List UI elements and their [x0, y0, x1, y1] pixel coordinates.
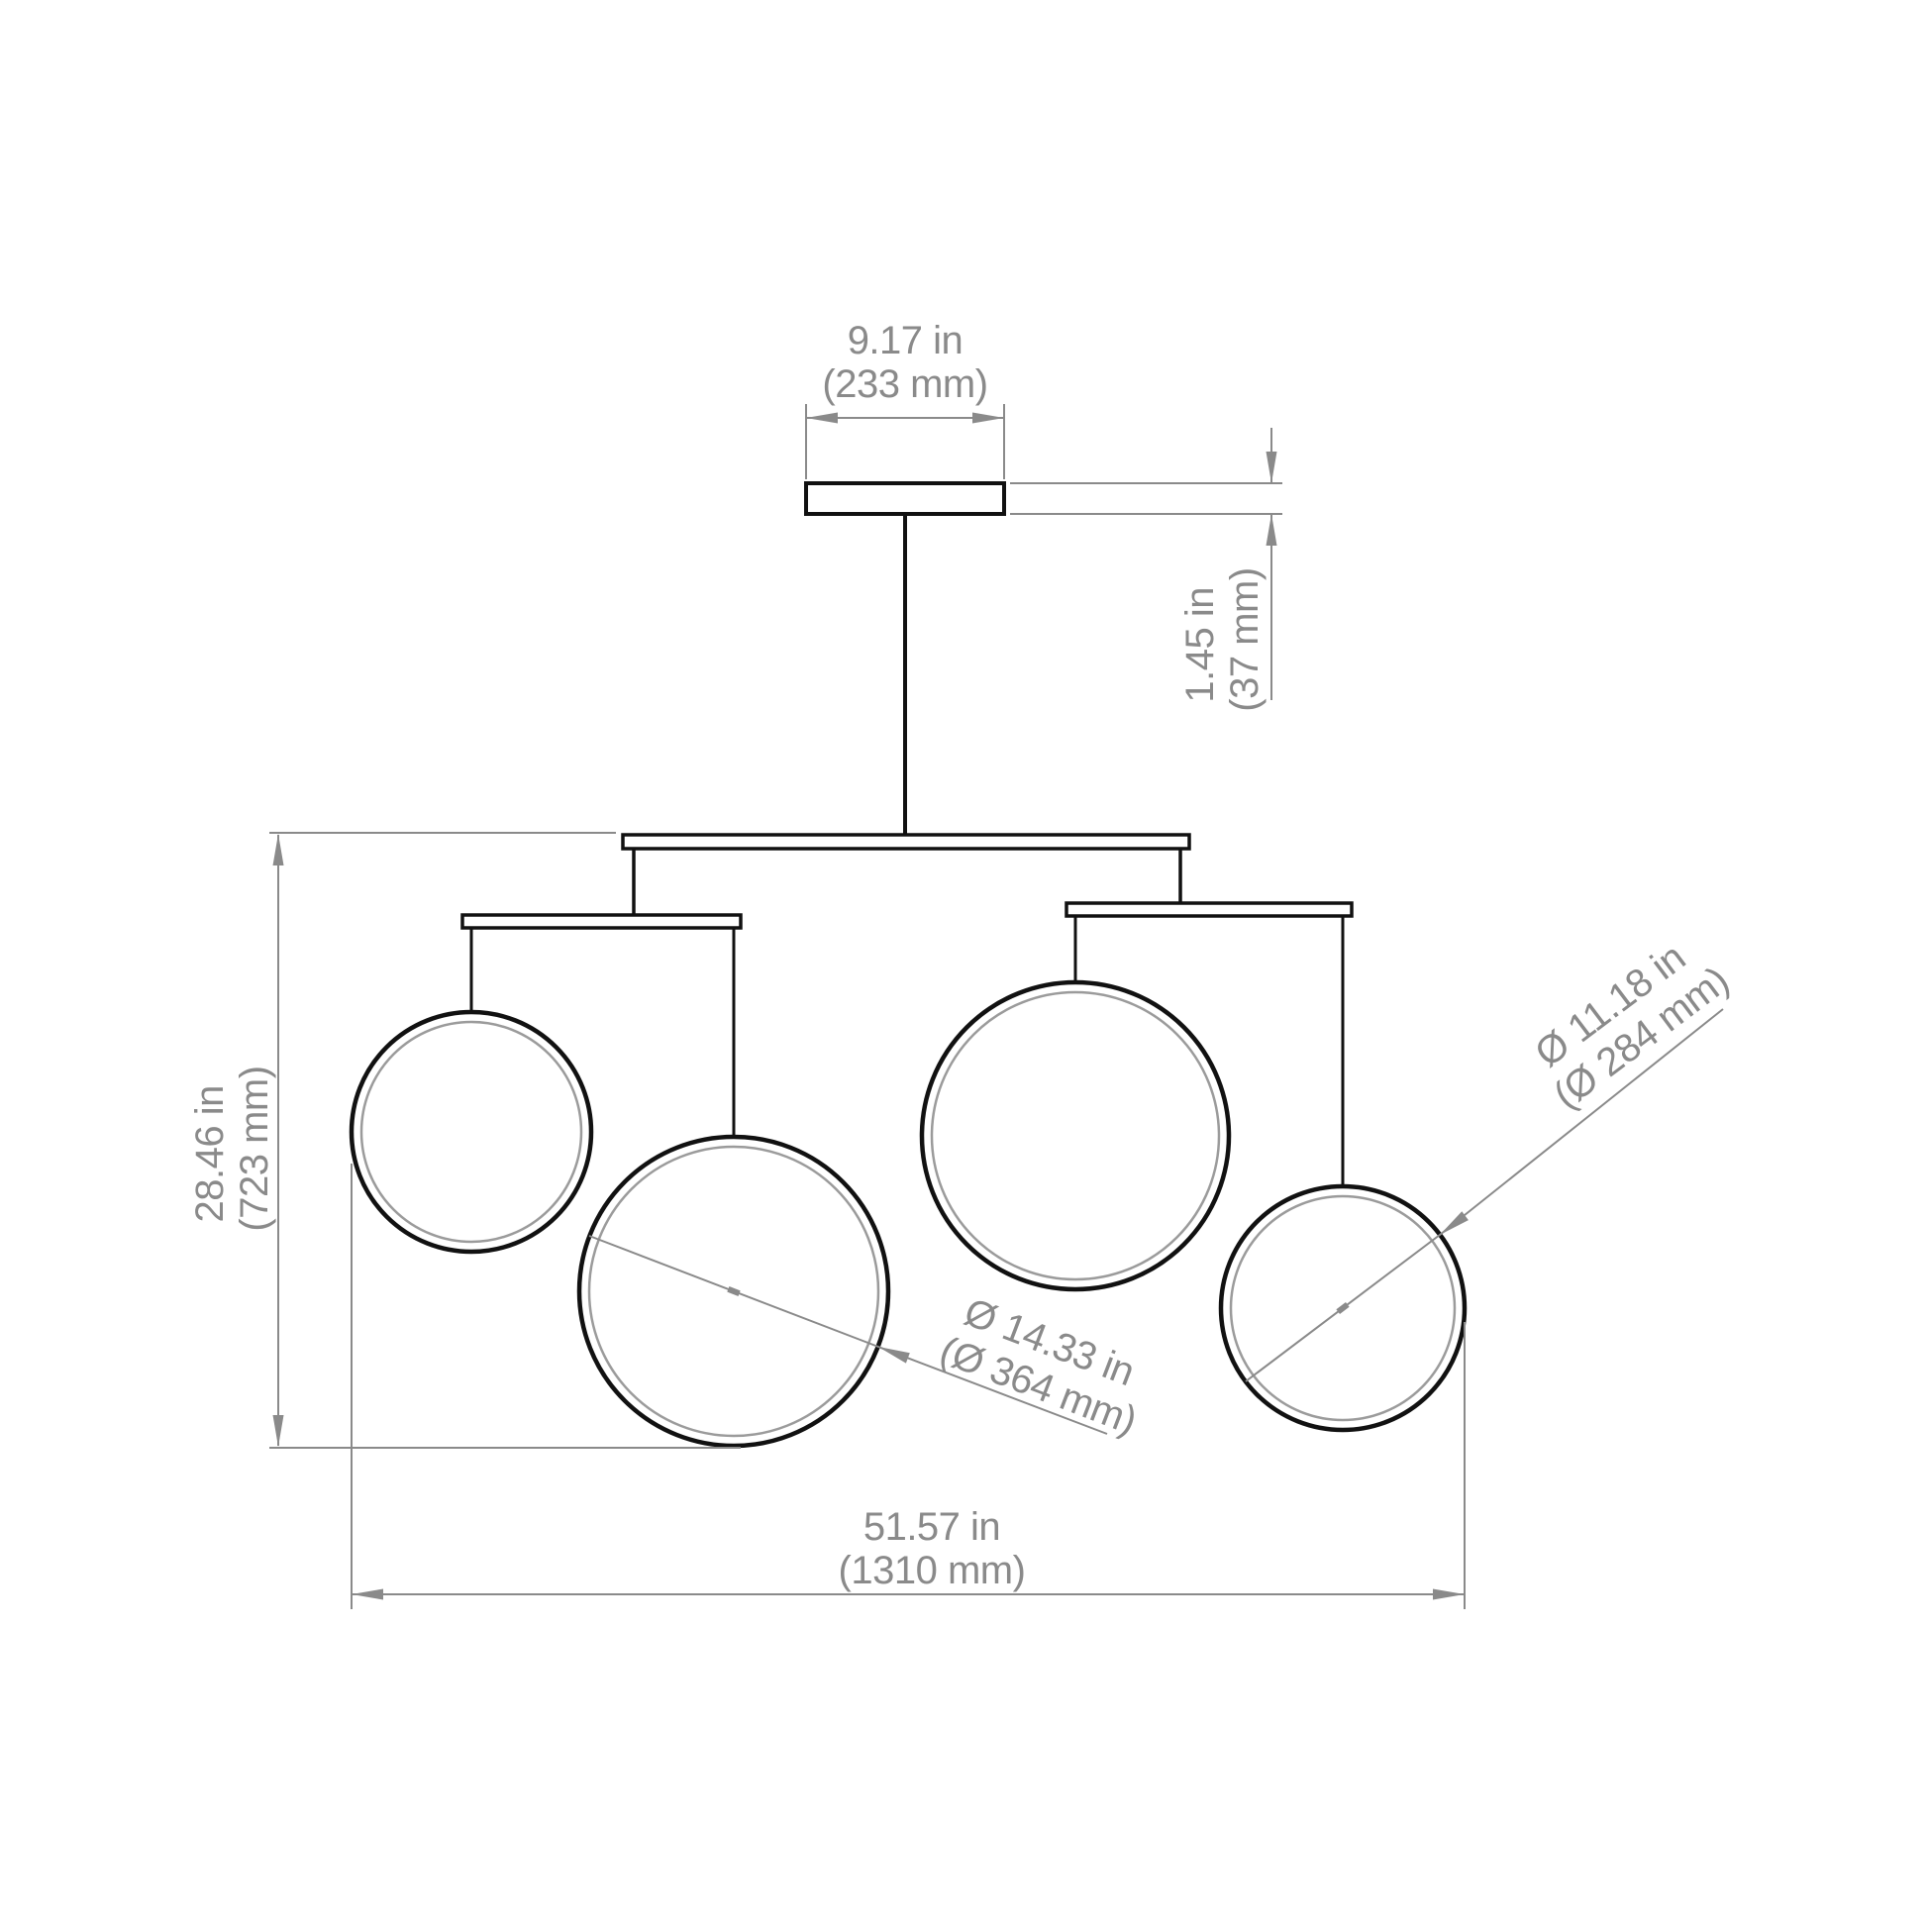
arrow-left-icon: [806, 413, 838, 424]
dimension-large-ring-diameter: Ø 14.33 in (Ø 364 mm): [589, 1236, 1159, 1443]
dimension-small-ring-diameter: Ø 11.18 in (Ø 284 mm): [1246, 923, 1737, 1381]
left-sub-arm: [462, 915, 741, 928]
fixture: [352, 483, 1465, 1446]
arrow-right-icon: [972, 413, 1004, 424]
dim-label-rotated: 1.45 in (37 mm): [1178, 567, 1267, 711]
arrow-left-icon: [352, 1589, 383, 1600]
dim-label-metric: (233 mm): [822, 362, 987, 406]
dim-label-rotated: Ø 11.18 in (Ø 284 mm): [1519, 923, 1737, 1117]
dimension-canopy-width: 9.17 in (233 mm): [806, 319, 1004, 479]
right-sub-arm: [1066, 903, 1352, 916]
arrow-down-icon: [1267, 452, 1277, 483]
center-tick: [727, 1286, 740, 1296]
arrow-right-icon: [1433, 1589, 1465, 1600]
dim-label-metric: (1310 mm): [839, 1549, 1026, 1592]
diameter-leader-line: [1246, 1009, 1723, 1381]
dimension-canopy-height: 1.45 in (37 mm): [1010, 428, 1282, 712]
arrow-diagonal-icon: [878, 1347, 910, 1364]
dim-label-imperial: 9.17 in: [848, 319, 963, 362]
chandelier-dimension-diagram: 9.17 in (233 mm) 1.45 in (37 mm) 28.46 i: [0, 0, 1927, 1927]
ceiling-canopy: [806, 483, 1004, 514]
dim-label-imperial: 28.46 in: [188, 1085, 232, 1222]
dim-label-metric: (37 mm): [1223, 567, 1267, 711]
dim-label-rotated: Ø 14.33 in (Ø 364 mm): [934, 1287, 1158, 1444]
ring-small-left: [352, 1012, 591, 1252]
arrow-down-icon: [273, 1415, 284, 1447]
ring-large-center-right: [922, 982, 1229, 1289]
dim-label-imperial: 51.57 in: [863, 1505, 1000, 1549]
arrow-up-icon: [1267, 514, 1277, 546]
ring1-outer: [352, 1012, 591, 1252]
ring3-inner: [932, 992, 1219, 1279]
main-bar: [623, 835, 1189, 849]
dim-label-rotated: 28.46 in (723 mm): [188, 1066, 276, 1231]
dim-label-imperial: 1.45 in: [1178, 587, 1222, 703]
technical-drawing-page: 9.17 in (233 mm) 1.45 in (37 mm) 28.46 i: [0, 0, 1927, 1927]
ring1-inner: [361, 1022, 581, 1242]
arrow-up-icon: [273, 834, 284, 865]
arrow-diagonal-icon: [1440, 1211, 1469, 1235]
ring3-outer: [922, 982, 1229, 1289]
dim-label-metric: (723 mm): [233, 1066, 276, 1231]
